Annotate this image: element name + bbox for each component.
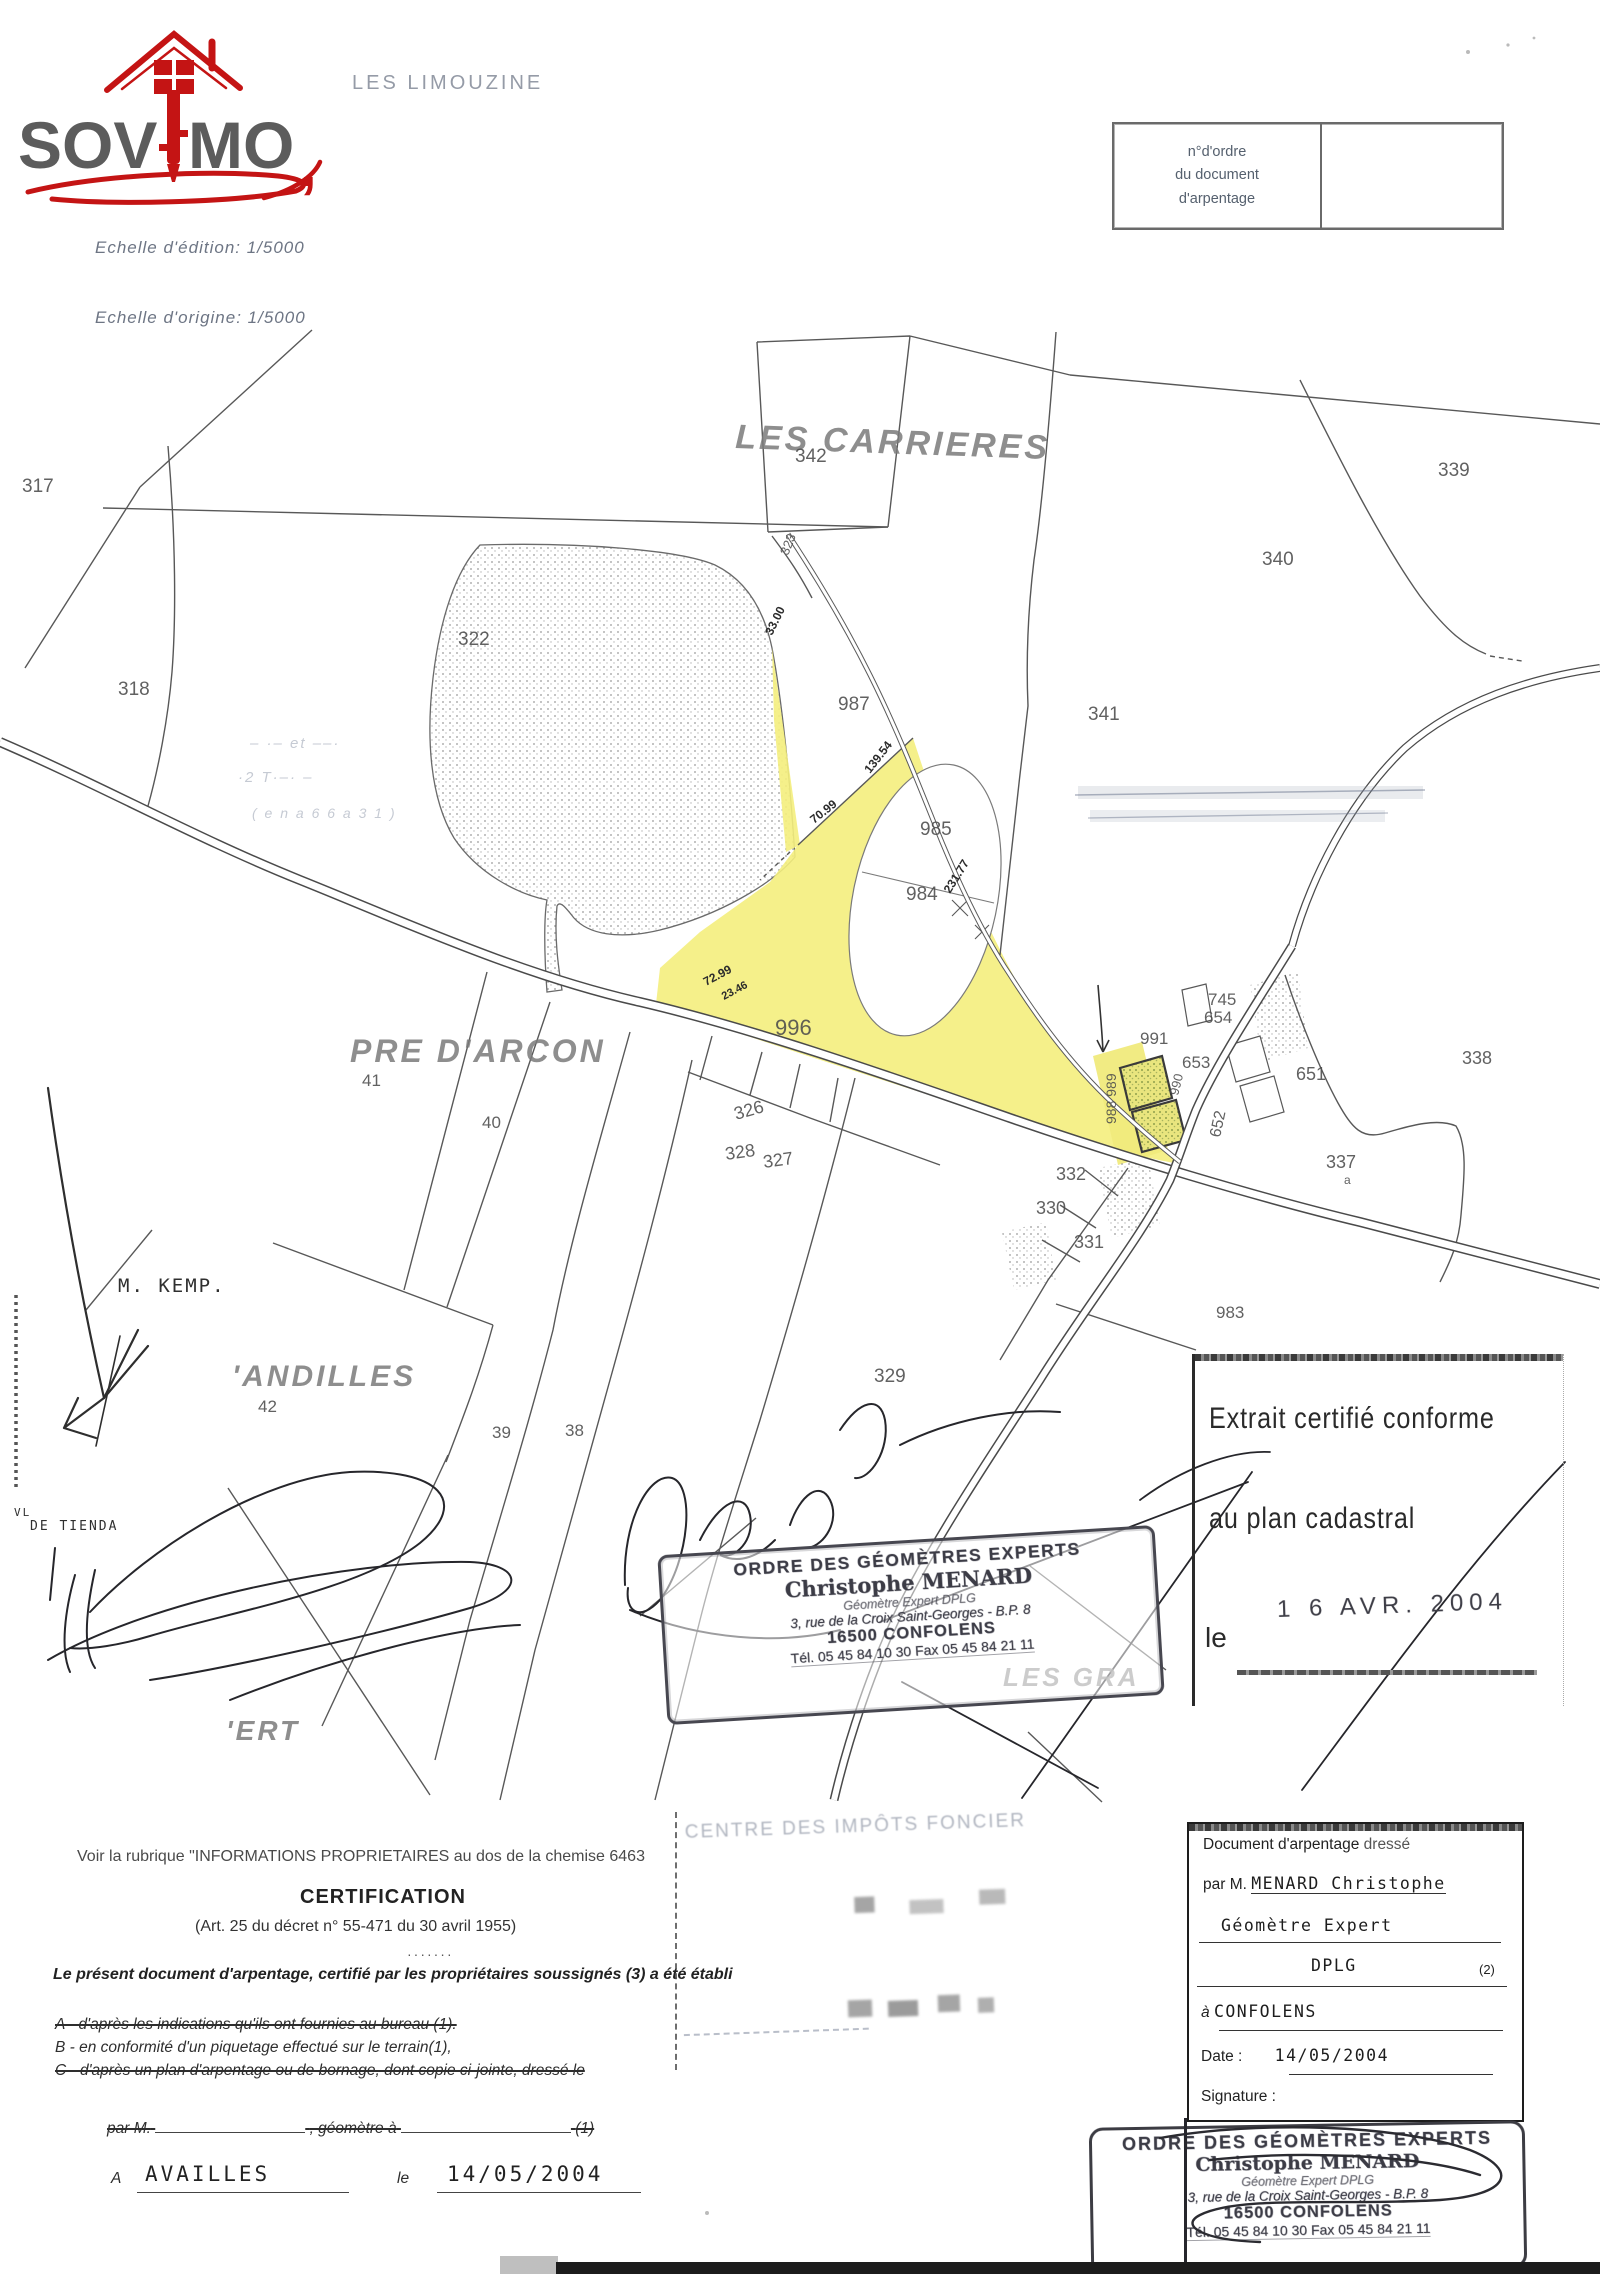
order-box-line1: n°d'ordre — [1114, 141, 1320, 164]
arp-a-label: à — [1201, 2004, 1210, 2021]
certification-option-b: B - en conformité d'un piquetage effectu… — [55, 2039, 452, 2057]
impots-stamp-text: CENTRE DES IMPÔTS FONCIER — [684, 1810, 1026, 1844]
parcel-label: 990 — [1166, 1072, 1186, 1097]
geometre-stamp-bottom: ORDRE DES GÉOMÈTRES EXPERTS Christophe M… — [1089, 2120, 1528, 2274]
parcel-label: 329 — [874, 1366, 906, 1387]
parcel-label: 652 — [1207, 1109, 1229, 1139]
logo-comma: , — [300, 132, 317, 199]
arp-surveyor-name: MENARD Christophe — [1251, 1874, 1445, 1894]
le-label: le — [397, 2170, 409, 2188]
scan-edge-artifact — [500, 2256, 558, 2274]
arp-geometre-expert: Géomètre Expert — [1221, 1916, 1393, 1935]
faint-label: ·2 T·–· – — [238, 769, 314, 786]
dim-label: 33.00 — [762, 604, 788, 637]
sovimo-logo: SOV MO , — [12, 26, 342, 206]
parcel-label: 339 — [1438, 460, 1470, 481]
underline — [1197, 1986, 1507, 1987]
arp-line1-dresse: dressé — [1364, 1836, 1411, 1853]
parcel-label: 653 — [1182, 1053, 1210, 1072]
arp-note2: (2) — [1479, 1962, 1495, 1977]
arp-line1-main: Document d'arpentage — [1203, 1836, 1359, 1853]
parcel-label: 985 — [920, 819, 952, 840]
parcel-label: 340 — [1262, 549, 1294, 570]
extrait-le-label: le — [1205, 1622, 1227, 1654]
parcel-label: 984 — [906, 884, 938, 905]
arp-par-m: par M. — [1203, 1876, 1247, 1893]
parcel-label: 338 — [1462, 1048, 1492, 1068]
place-label: 'ANDILLES — [232, 1360, 416, 1393]
scan-bottom-bar — [556, 2262, 1600, 2274]
stamp-phone-line: Tél. 05 45 84 10 30 Fax 05 45 84 21 11 — [1186, 2220, 1430, 2241]
place-label: 'ERT — [226, 1715, 300, 1746]
parcel-label: 330 — [1036, 1198, 1066, 1218]
parcel-label: 323 — [777, 531, 799, 557]
parcel-label: 328 — [724, 1140, 757, 1164]
parcel-label: 38 — [565, 1421, 584, 1440]
north-arrow-icon — [48, 1088, 148, 1446]
scale-origin-label: Echelle d'origine: 1/5000 — [95, 308, 306, 328]
order-box-line3: d'arpentage — [1114, 188, 1320, 211]
box-top-border — [1189, 1824, 1522, 1831]
box-top-border — [1195, 1354, 1563, 1361]
parcel-label: 337 — [1326, 1152, 1356, 1172]
arp-date-label: Date : — [1201, 2048, 1242, 2065]
parcel-label: 322 — [458, 629, 490, 650]
parcel-label: 651 — [1296, 1064, 1326, 1084]
par-suf: (1) — [575, 2120, 594, 2137]
logo-text-sov: SOV — [18, 108, 157, 182]
extrait-certifie-box: Extrait certifié conforme au plan cadast… — [1192, 1354, 1564, 1706]
certification-option-c: C - d'après un plan d'arpentage ou de bo… — [55, 2062, 585, 2080]
arp-line5: à CONFOLENS — [1201, 2002, 1317, 2022]
place-underline — [137, 2192, 349, 2193]
certification-section: Voir la rubrique "INFORMATIONS PROPRIETA… — [45, 1840, 1160, 2270]
place-label: PRE D'ARCON — [350, 1033, 606, 1069]
arp-line2: par M. MENARD Christophe — [1203, 1874, 1446, 1894]
arp-line1: Document d'arpentage dressé — [1203, 1836, 1410, 1854]
order-number-box: n°d'ordre du document d'arpentage — [1112, 122, 1504, 230]
par-mid: , géomètre à — [310, 2120, 397, 2137]
extrait-date-line — [1237, 1670, 1537, 1675]
place-label: LES CARRIERES — [735, 418, 1051, 467]
certification-intro: Le présent document d'arpentage, certifi… — [53, 1966, 733, 1984]
parcel-label: 745 — [1208, 990, 1236, 1009]
parcel-label: 327 — [762, 1148, 795, 1172]
parcel-label: a — [1344, 1173, 1351, 1187]
order-box-empty-cell — [1322, 124, 1502, 228]
certification-dots: ······· — [407, 1946, 454, 1962]
parcel-label: 326 — [732, 1096, 766, 1124]
parcel-label: 996 — [775, 1015, 812, 1040]
page-fold-line — [1184, 2118, 1187, 2274]
parcel-label: 332 — [1056, 1164, 1086, 1184]
blank-field — [155, 2118, 305, 2133]
certification-title: CERTIFICATION — [300, 1886, 466, 1909]
parcel-label: 40 — [482, 1113, 501, 1132]
certification-article: (Art. 25 du décret n° 55-471 du 30 avril… — [195, 1918, 516, 1936]
date-underline — [437, 2192, 641, 2193]
parcel-label: 39 — [492, 1423, 511, 1442]
place-availles: AVAILLES — [145, 2162, 270, 2186]
blank-field — [401, 2118, 571, 2133]
extrait-line2: au plan cadastral — [1209, 1502, 1415, 1536]
par-pre: par M. — [107, 2120, 151, 2137]
underline — [1199, 1942, 1501, 1943]
underline — [1289, 2074, 1493, 2075]
parcel-label: 987 — [838, 694, 870, 715]
parcel-label: 41 — [362, 1071, 381, 1090]
date-handwritten: 14/05/2004 — [447, 2162, 603, 2186]
hand-label: M. KEMP. — [118, 1275, 226, 1297]
extrait-date-stamp: 1 6 AVR. 2004 — [1277, 1588, 1509, 1624]
a-label: A — [111, 2170, 121, 2188]
parcel-label: 983 — [1216, 1303, 1244, 1322]
arp-line6: Date : 14/05/2004 — [1201, 2046, 1389, 2066]
parcel-label: 991 — [1140, 1029, 1168, 1048]
certification-option-a: A - d'après les indications qu'ils ont f… — [55, 2016, 457, 2034]
parcel-label: 654 — [1204, 1008, 1232, 1027]
order-box-line2: du document — [1114, 164, 1320, 187]
illegible-struck-text — [1075, 786, 1425, 822]
order-box-label: n°d'ordre du document d'arpentage — [1114, 124, 1322, 228]
scanned-cadastral-document: SOV MO , LES LIMOUZINE n°d'ordre du docu… — [0, 0, 1600, 2274]
arp-dplg: DPLG — [1311, 1956, 1357, 1975]
arpentage-dresse-box: Document d'arpentage dressé par M. MENAR… — [1187, 1822, 1524, 2122]
parcel-label: 342 — [795, 446, 827, 467]
lieu-dit-top-label: LES LIMOUZINE — [352, 72, 543, 95]
extrait-line1: Extrait certifié conforme — [1209, 1402, 1495, 1436]
hand-label: VL — [14, 1506, 31, 1519]
faint-label: ( e n a 6 6 a 3 1 ) — [252, 805, 397, 821]
hand-label: DE TIENDA — [30, 1519, 118, 1534]
parcel-label: 341 — [1088, 704, 1120, 725]
arp-signature-label: Signature : — [1201, 2088, 1276, 2106]
parcel-label: 42 — [258, 1397, 277, 1416]
faint-label: – ·– et ––· — [249, 735, 340, 752]
parcel-label: 988 989 — [1103, 1073, 1119, 1124]
key-icon — [159, 90, 188, 182]
geometre-stamp-center: ORDRE DES GÉOMÈTRES EXPERTS Christophe M… — [657, 1525, 1164, 1725]
parcel-label: 331 — [1074, 1232, 1104, 1252]
underline — [1219, 2030, 1503, 2031]
sovimo-logo-graphic: SOV MO , — [12, 26, 342, 206]
scale-edition-label: Echelle d'édition: 1/5000 — [95, 238, 305, 258]
dashed-divider — [675, 1812, 677, 2070]
arp-city: CONFOLENS — [1214, 2002, 1317, 2021]
parcel-label: 317 — [22, 476, 54, 497]
par-geometre-line: par M. , géomètre à (1) — [107, 2118, 594, 2138]
parcel-label: 318 — [118, 679, 150, 700]
voir-rubrique-line: Voir la rubrique "INFORMATIONS PROPRIETA… — [77, 1848, 645, 1866]
arp-date-value: 14/05/2004 — [1275, 2046, 1389, 2065]
